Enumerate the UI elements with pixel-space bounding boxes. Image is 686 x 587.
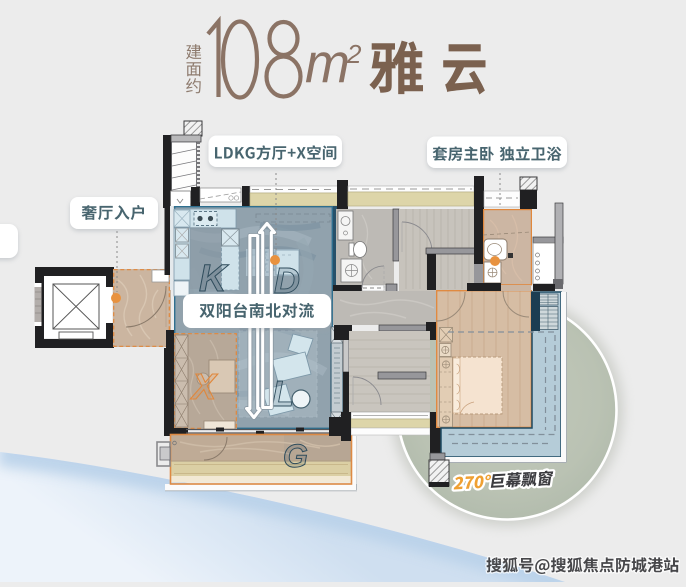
svg-text:2: 2 <box>346 39 362 69</box>
svg-text:K: K <box>199 258 229 300</box>
svg-text:X: X <box>190 366 218 407</box>
svg-text:L: L <box>272 373 294 414</box>
svg-text:m: m <box>305 31 350 94</box>
svg-text:G: G <box>283 438 308 474</box>
